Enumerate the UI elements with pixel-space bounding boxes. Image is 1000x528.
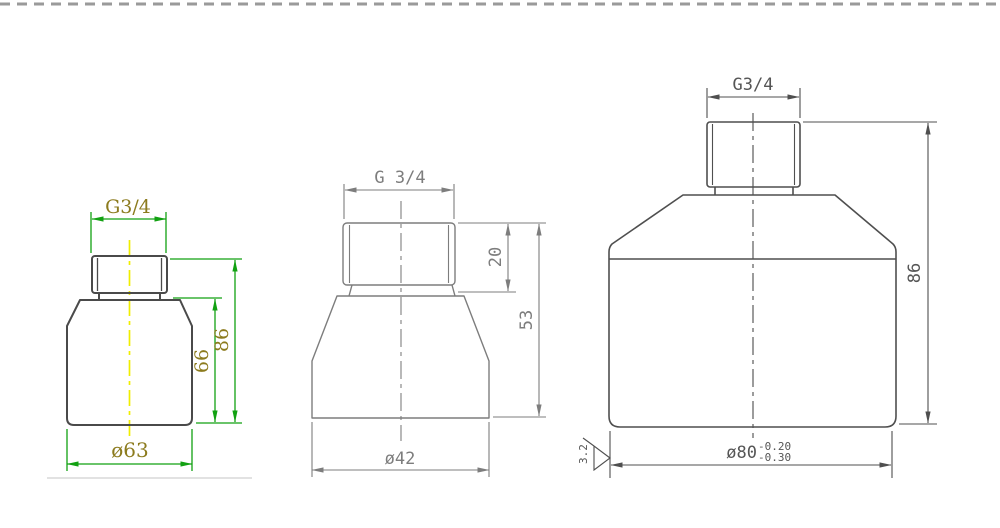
left-body-height-label: 66 [191,349,213,373]
left-total-height-label: 86 [211,328,233,352]
middle-drawing: G 3/4 20 53 ø42 [312,168,546,477]
cad-drawing-sheet: G3/4 66 86 ø63 G 3/4 20 53 ø42 [0,0,1000,528]
middle-total-height-label: 53 [517,310,537,330]
right-drawing: G3/4 86 ø80 -0.20 -0.30 3.2 [577,75,937,478]
technical-drawing-canvas: G3/4 66 86 ø63 G 3/4 20 53 ø42 [0,0,1000,528]
right-dimensions [583,88,937,478]
right-thread-label: G3/4 [733,75,774,95]
right-diameter-label: ø80 [726,443,757,463]
right-neck [715,187,793,195]
left-thread-extension-lines [91,212,166,253]
left-drawing: G3/4 66 86 ø63 [67,196,242,471]
middle-diameter-label: ø42 [385,449,416,469]
right-tolerance-lower-label: -0.30 [758,451,791,464]
left-thread-label: G3/4 [105,196,151,218]
middle-neck [349,285,455,296]
middle-thread-label: G 3/4 [374,168,425,188]
middle-dimensions [312,184,546,477]
right-total-height-label: 86 [905,263,925,283]
middle-thread-outline [343,223,455,285]
middle-thread-height-label: 20 [486,247,506,267]
left-diameter-label: ø63 [111,438,149,462]
surface-roughness-value: 3.2 [577,444,590,464]
middle-thread-extension-lines [344,184,454,219]
